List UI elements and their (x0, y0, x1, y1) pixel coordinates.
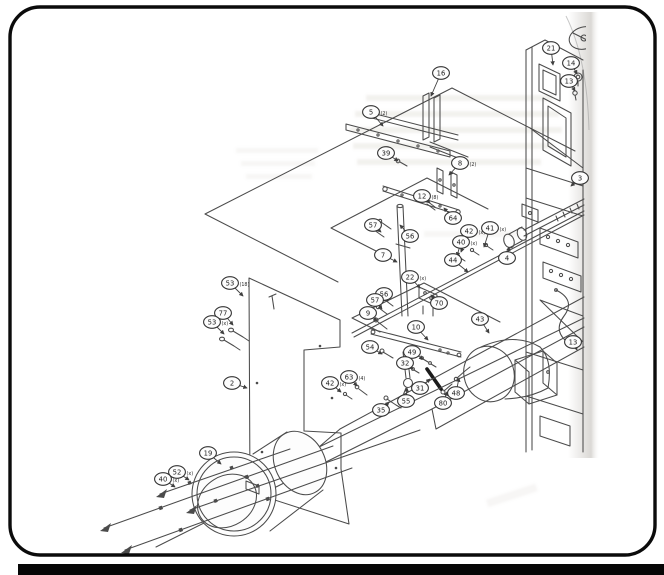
svg-text:8: 8 (458, 160, 462, 168)
svg-text:70: 70 (435, 300, 444, 308)
svg-text:19: 19 (204, 450, 213, 458)
callout-57: 57 (365, 219, 382, 232)
svg-text:54: 54 (366, 344, 375, 352)
svg-text:(x): (x) (222, 321, 229, 327)
svg-text:57: 57 (371, 297, 380, 305)
svg-text:48: 48 (452, 390, 461, 398)
svg-text:40: 40 (159, 476, 168, 484)
scanned-page: 165(2)398(2)12(8)645756742(x)41(x)40(x)4… (0, 0, 664, 575)
svg-text:35: 35 (377, 407, 386, 415)
svg-text:42: 42 (326, 380, 335, 388)
svg-text:13: 13 (569, 339, 578, 347)
svg-text:21: 21 (547, 45, 556, 53)
svg-text:31: 31 (416, 385, 425, 393)
svg-text:(2): (2) (381, 111, 388, 117)
svg-text:14: 14 (567, 60, 576, 68)
svg-text:(x): (x) (340, 382, 347, 388)
callout-32: 32 (397, 357, 414, 370)
svg-text:77: 77 (219, 310, 228, 318)
svg-text:10: 10 (412, 324, 421, 332)
svg-text:39: 39 (382, 150, 391, 158)
svg-text:(x): (x) (173, 478, 180, 484)
svg-text:53: 53 (226, 280, 235, 288)
svg-text:3: 3 (578, 175, 582, 183)
svg-text:64: 64 (449, 215, 458, 223)
svg-text:52: 52 (173, 469, 182, 477)
svg-text:41: 41 (486, 225, 495, 233)
svg-text:32: 32 (401, 360, 410, 368)
svg-text:(2): (2) (470, 162, 477, 168)
svg-text:7: 7 (381, 252, 385, 260)
svg-text:55: 55 (402, 398, 411, 406)
svg-text:(8): (8) (432, 195, 439, 201)
svg-text:22: 22 (406, 274, 415, 282)
svg-text:(x): (x) (420, 276, 427, 282)
svg-text:56: 56 (406, 233, 415, 241)
svg-text:4: 4 (505, 255, 509, 263)
svg-text:(x): (x) (500, 227, 507, 233)
svg-text:42: 42 (465, 228, 474, 236)
svg-text:57: 57 (369, 222, 378, 230)
svg-text:16: 16 (437, 70, 446, 78)
svg-text:2: 2 (230, 380, 234, 388)
svg-text:(x): (x) (187, 471, 194, 477)
exploded-parts-diagram: 165(2)398(2)12(8)645756742(x)41(x)40(x)4… (0, 0, 664, 575)
svg-text:9: 9 (366, 310, 370, 318)
scan-edge-bar (18, 564, 664, 575)
svg-text:49: 49 (408, 349, 417, 357)
svg-text:5: 5 (369, 109, 373, 117)
svg-text:40: 40 (457, 239, 466, 247)
svg-text:(x): (x) (471, 241, 478, 247)
svg-text:44: 44 (449, 257, 458, 265)
svg-text:43: 43 (476, 316, 485, 324)
svg-text:(4): (4) (359, 376, 366, 382)
svg-text:13: 13 (565, 78, 574, 86)
svg-text:63: 63 (345, 374, 354, 382)
svg-text:12: 12 (418, 193, 427, 201)
svg-text:53: 53 (208, 319, 217, 327)
svg-text:80: 80 (439, 400, 448, 408)
svg-text:(18): (18) (240, 282, 250, 288)
